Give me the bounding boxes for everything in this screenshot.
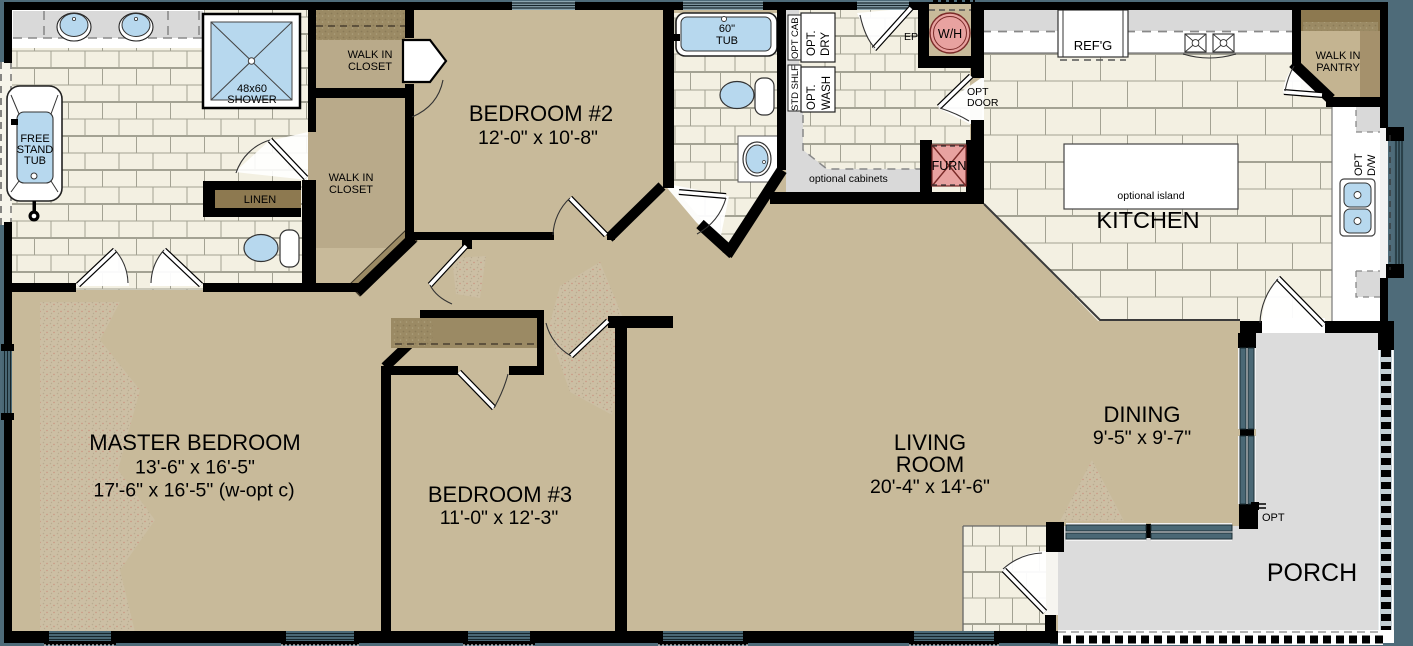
svg-text:WASH: WASH — [821, 76, 833, 110]
svg-text:OPT: OPT — [1353, 153, 1365, 176]
svg-text:OPT CAB: OPT CAB — [790, 17, 801, 59]
svg-text:WALK IN: WALK IN — [1316, 50, 1361, 62]
svg-text:TUB: TUB — [24, 155, 46, 167]
svg-text:W/H: W/H — [938, 27, 962, 41]
svg-text:EP: EP — [904, 31, 918, 43]
svg-text:DOOR: DOOR — [967, 97, 999, 109]
svg-text:WALK IN: WALK IN — [329, 172, 374, 184]
svg-text:KITCHEN: KITCHEN — [1096, 207, 1199, 233]
svg-text:PANTRY: PANTRY — [1316, 62, 1360, 74]
svg-text:60": 60" — [719, 23, 735, 35]
svg-text:17'-6" x 16'-5" (w-opt c): 17'-6" x 16'-5" (w-opt c) — [93, 480, 294, 502]
svg-text:DINING: DINING — [1104, 402, 1181, 427]
svg-text:OPT.: OPT. — [806, 84, 818, 110]
svg-text:D/W: D/W — [1366, 154, 1378, 176]
svg-text:OPT.: OPT. — [806, 30, 818, 56]
svg-text:TUB: TUB — [716, 35, 738, 47]
svg-text:STD SHLF: STD SHLF — [790, 65, 801, 111]
svg-text:13'-6" x 16'-5": 13'-6" x 16'-5" — [135, 457, 255, 479]
svg-text:REF'G: REF'G — [1074, 38, 1113, 53]
svg-text:ROOM: ROOM — [896, 452, 964, 477]
svg-text:FURN: FURN — [932, 159, 967, 173]
svg-text:CLOSET: CLOSET — [348, 61, 392, 73]
svg-text:BEDROOM #3: BEDROOM #3 — [428, 482, 572, 507]
svg-text:WALK IN: WALK IN — [348, 49, 393, 61]
svg-text:CLOSET: CLOSET — [329, 184, 373, 196]
svg-text:BEDROOM #2: BEDROOM #2 — [469, 101, 613, 126]
svg-text:MASTER BEDROOM: MASTER BEDROOM — [89, 430, 300, 455]
svg-text:11'-0" x 12'-3": 11'-0" x 12'-3" — [440, 507, 559, 529]
svg-text:12'-0" x 10'-8": 12'-0" x 10'-8" — [478, 127, 598, 149]
svg-text:optional cabinets: optional cabinets — [809, 173, 888, 185]
svg-text:optional island: optional island — [1117, 190, 1184, 202]
svg-text:SHOWER: SHOWER — [227, 94, 277, 106]
svg-text:LINEN: LINEN — [244, 194, 276, 206]
svg-text:DRY: DRY — [820, 32, 832, 56]
svg-text:9'-5" x 9'-7": 9'-5" x 9'-7" — [1093, 427, 1191, 449]
svg-text:20'-4" x 14'-6": 20'-4" x 14'-6" — [870, 476, 990, 498]
svg-text:PORCH: PORCH — [1267, 559, 1357, 587]
svg-text:OPT: OPT — [1262, 512, 1285, 524]
